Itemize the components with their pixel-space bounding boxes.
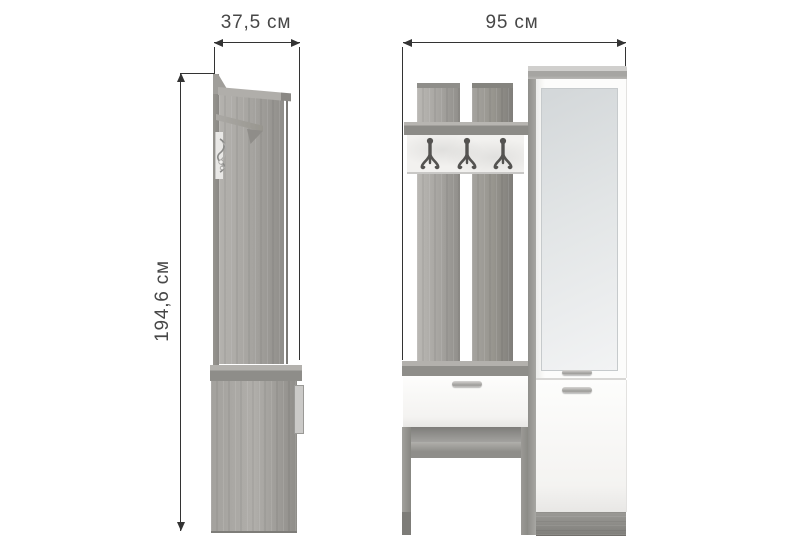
coat-hook-icon	[455, 137, 479, 171]
front-bench-top	[402, 361, 531, 376]
furniture-dimension-diagram: 37,5 см 194,6 см 95 см	[0, 0, 800, 560]
side-width-dimension-line	[214, 42, 300, 43]
arrowhead-down-icon	[177, 522, 185, 531]
front-left-plank-cap	[417, 83, 460, 88]
side-drawer-front-edge	[294, 385, 304, 434]
front-niche-shadow	[411, 427, 521, 442]
coat-hook-icon	[491, 137, 515, 171]
cabinet-side-edge	[528, 79, 536, 535]
side-extension-line-right	[299, 47, 300, 360]
front-width-dimension-line	[403, 42, 626, 43]
side-extension-line-left	[214, 47, 215, 75]
side-height-tick	[180, 73, 214, 74]
side-lower-cabinet	[211, 381, 297, 533]
front-width-label: 95 см	[452, 12, 572, 34]
lower-door-handle	[562, 387, 592, 393]
arrowhead-left-icon	[214, 39, 223, 47]
drawer-handle	[452, 381, 482, 387]
arrowhead-right-icon	[291, 39, 300, 47]
arrowhead-left-icon	[403, 39, 412, 47]
coat-hook-icon	[418, 137, 442, 171]
front-extension-line-left	[402, 47, 403, 360]
arrowhead-up-icon	[177, 73, 185, 82]
arrowhead-right-icon	[617, 39, 626, 47]
mirror-door-handle	[562, 370, 592, 375]
front-extension-line-right	[625, 47, 626, 68]
side-height-dimension-line	[180, 73, 181, 531]
front-left-foot	[402, 512, 411, 535]
front-top-shelf	[404, 122, 529, 135]
cabinet-plinth	[536, 512, 626, 536]
mirror	[541, 88, 618, 371]
side-width-label: 37,5 см	[196, 12, 316, 34]
cabinet-top-edge	[528, 66, 627, 79]
side-height-label: 194,6 см	[152, 243, 174, 359]
front-right-plank-cap	[472, 83, 513, 88]
front-niche-shelf	[411, 442, 521, 458]
side-hook-icon	[213, 137, 235, 179]
side-bench	[210, 365, 302, 381]
lower-door	[536, 380, 627, 512]
